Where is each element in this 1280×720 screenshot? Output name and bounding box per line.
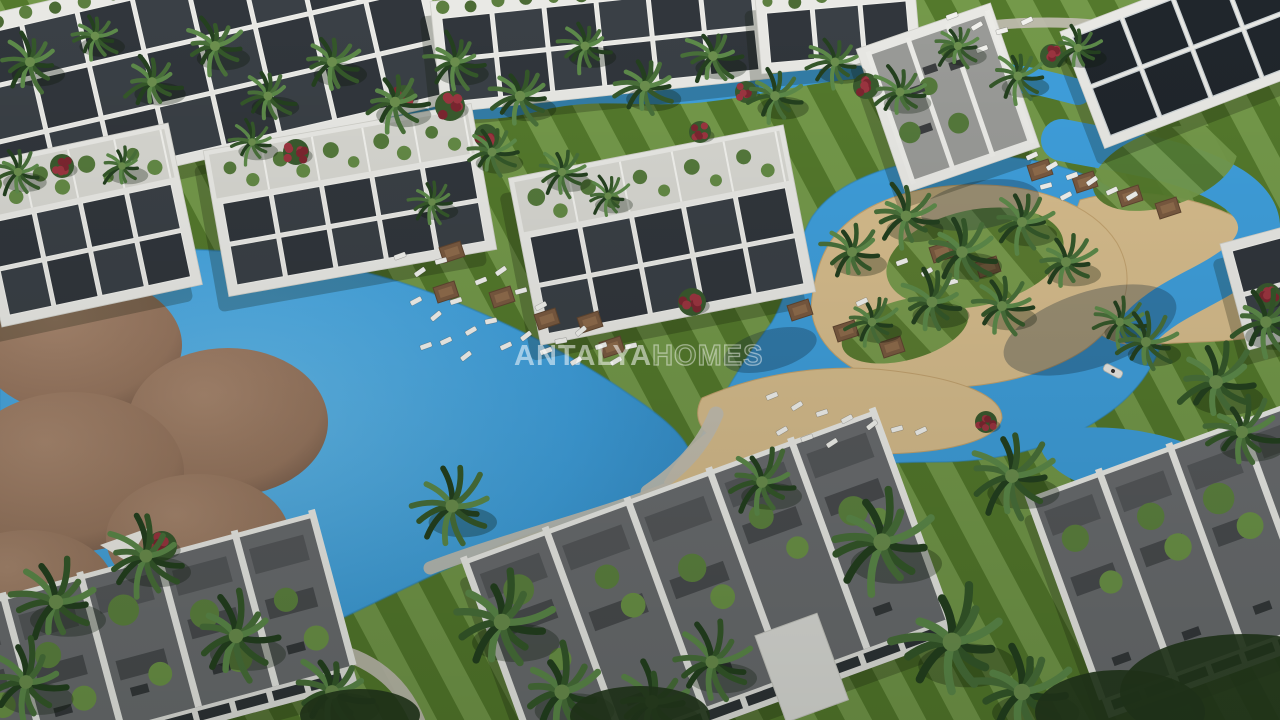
resort-aerial-render: ANTALYAHOMES	[0, 0, 1280, 720]
balcony-cell	[737, 188, 794, 243]
balcony-cell	[129, 184, 181, 237]
balcony-cell	[766, 9, 814, 63]
balcony-cell	[93, 242, 145, 295]
balcony-cell	[139, 232, 191, 285]
balcony-cell	[46, 252, 98, 305]
balcony-cell	[592, 268, 649, 323]
balcony-cell	[582, 218, 639, 273]
balcony-cell	[331, 220, 384, 267]
balcony-cell	[530, 228, 587, 283]
balcony-cell	[494, 8, 546, 53]
balcony-cell	[634, 208, 691, 263]
balcony-cell	[685, 198, 742, 253]
balcony-cell	[36, 204, 88, 257]
balcony-cell	[82, 194, 134, 247]
balcony-cell	[281, 229, 334, 276]
resort-scene	[0, 0, 1280, 720]
balcony-cell	[598, 0, 650, 42]
balcony-cell	[650, 0, 702, 36]
balcony-cell	[747, 238, 804, 293]
balcony-cell	[324, 178, 377, 225]
balcony-cell	[0, 262, 52, 315]
balcony-cell	[230, 238, 283, 285]
balcony-cell	[223, 195, 276, 242]
balcony-cell	[273, 186, 326, 233]
